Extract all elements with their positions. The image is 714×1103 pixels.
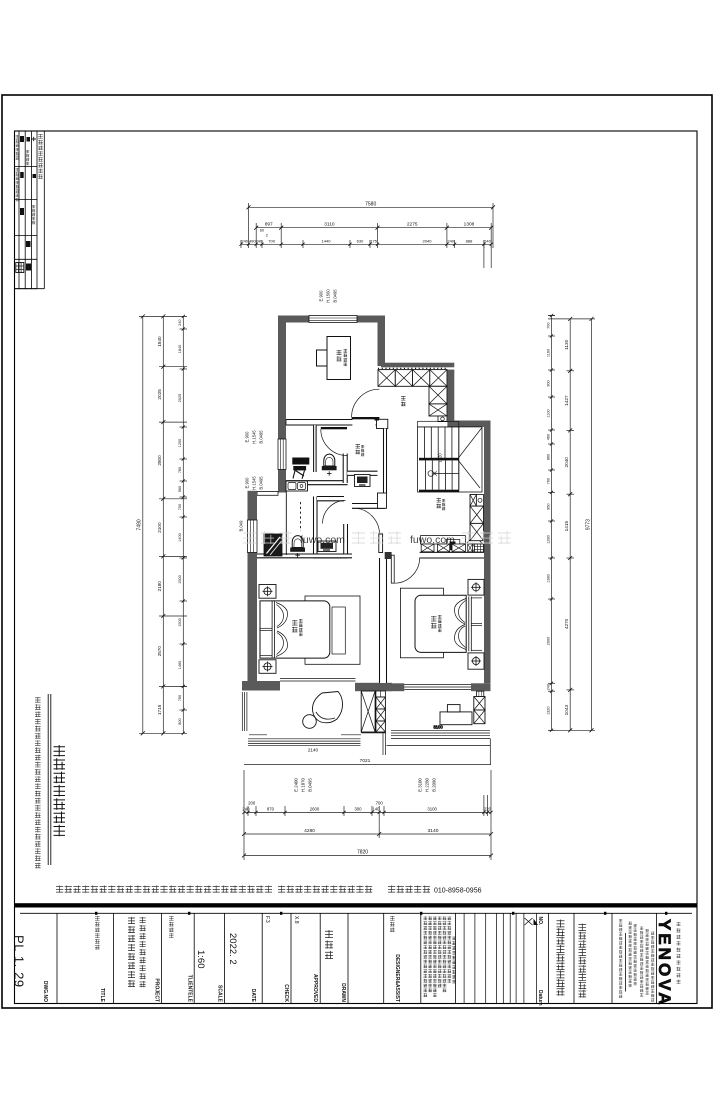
svg-text:900: 900 — [547, 380, 551, 386]
svg-text:H.2280: H.2280 — [425, 777, 430, 791]
svg-text:760: 760 — [178, 695, 182, 701]
svg-text:700: 700 — [268, 238, 275, 243]
svg-text:H.1545: H.1545 — [252, 476, 257, 490]
svg-text:1:60: 1:60 — [195, 950, 206, 969]
svg-text:TLIENTELE: TLIENTELE — [187, 975, 193, 1003]
svg-text:700: 700 — [178, 504, 182, 510]
svg-text:TITLE: TITLE — [99, 988, 105, 1003]
svg-text:3100: 3100 — [427, 806, 437, 811]
svg-text:E.3100: E.3100 — [418, 778, 423, 792]
svg-text:B.0495: B.0495 — [259, 430, 264, 444]
svg-text:1440: 1440 — [322, 238, 332, 243]
svg-text:760: 760 — [547, 478, 551, 484]
svg-text:7580: 7580 — [365, 202, 376, 208]
svg-text:1380: 1380 — [547, 574, 551, 582]
svg-text:NO.: NO. — [537, 917, 543, 927]
svg-text:240: 240 — [484, 238, 491, 243]
svg-text:1308: 1308 — [464, 222, 475, 228]
svg-text:E.2400: E.2400 — [294, 778, 299, 792]
svg-text:DATE: DATE — [250, 989, 256, 1003]
svg-text:2040: 2040 — [423, 238, 433, 243]
svg-text:200: 200 — [248, 801, 256, 806]
svg-text:CHECK: CHECK — [283, 984, 289, 1002]
svg-text:4280: 4280 — [304, 828, 315, 834]
svg-text:1043: 1043 — [564, 704, 569, 715]
svg-text:220: 220 — [484, 806, 492, 811]
svg-text:240: 240 — [547, 684, 551, 690]
svg-text:DRAWN: DRAWN — [340, 983, 346, 1002]
svg-text:1715: 1715 — [157, 704, 162, 715]
svg-text:1200: 1200 — [178, 439, 182, 447]
svg-text:DWG.NO: DWG.NO — [42, 981, 48, 1002]
svg-text:1100: 1100 — [547, 409, 551, 417]
svg-text:B.0495: B.0495 — [333, 289, 338, 303]
svg-text:2140: 2140 — [308, 748, 319, 753]
svg-text:B.0495: B.0495 — [259, 476, 264, 490]
svg-text:X.8: X.8 — [293, 916, 299, 924]
svg-text:1280: 1280 — [547, 535, 551, 543]
svg-text:2275: 2275 — [407, 222, 418, 228]
svg-text:2900: 2900 — [547, 637, 551, 645]
svg-text:140: 140 — [372, 806, 380, 811]
svg-text:YENOVA: YENOVA — [655, 919, 674, 1008]
svg-text:fuwo.com: fuwo.com — [300, 534, 345, 546]
svg-text:SCALE: SCALE — [217, 985, 223, 1003]
svg-text:560: 560 — [178, 486, 182, 492]
svg-text:3140: 3140 — [428, 828, 439, 834]
svg-text:APPROVED: APPROVED — [312, 974, 318, 1002]
svg-text:PROJECT: PROJECT — [154, 978, 160, 1002]
svg-text:1420: 1420 — [438, 453, 443, 463]
svg-text:950: 950 — [547, 504, 551, 510]
svg-text:1400: 1400 — [178, 533, 182, 541]
svg-text:1427: 1427 — [564, 395, 569, 406]
svg-text:H.1545: H.1545 — [252, 430, 257, 444]
svg-text:E.900: E.900 — [319, 290, 324, 302]
svg-text:240: 240 — [242, 806, 250, 811]
svg-text:1460: 1460 — [178, 661, 182, 669]
svg-text:175: 175 — [370, 238, 377, 243]
svg-text:1500: 1500 — [178, 618, 182, 626]
svg-text:2180: 2180 — [157, 581, 162, 592]
svg-text:240: 240 — [178, 320, 182, 326]
svg-text:fuwo.com: fuwo.com — [410, 534, 455, 546]
svg-text:H.1560: H.1560 — [326, 289, 331, 303]
svg-text:60: 60 — [260, 229, 264, 233]
svg-text:2570: 2570 — [157, 646, 162, 657]
svg-text:800: 800 — [178, 718, 182, 724]
svg-text:300: 300 — [354, 806, 362, 811]
svg-text:2022. 2: 2022. 2 — [227, 933, 238, 965]
svg-text:700: 700 — [547, 323, 551, 329]
svg-text:F.3: F.3 — [264, 916, 270, 923]
svg-text:860: 860 — [547, 454, 551, 460]
svg-text:E.900: E.900 — [245, 431, 250, 443]
svg-text:1320: 1320 — [547, 706, 551, 714]
svg-text:897: 897 — [265, 222, 273, 228]
svg-text:2025: 2025 — [157, 389, 162, 400]
svg-text:240: 240 — [447, 238, 454, 243]
svg-text:DESIGNER&ASSIST: DESIGNER&ASSIST — [394, 954, 400, 1002]
svg-text:2025: 2025 — [178, 394, 182, 402]
svg-text:888: 888 — [466, 238, 473, 243]
svg-text:B.2090: B.2090 — [432, 778, 437, 792]
svg-text:1160: 1160 — [547, 349, 551, 357]
svg-text:2: 2 — [266, 234, 268, 238]
svg-text:7820: 7820 — [357, 849, 368, 855]
svg-text:870: 870 — [267, 806, 275, 811]
svg-text:2040: 2040 — [564, 457, 569, 468]
svg-text:460: 460 — [547, 434, 551, 440]
svg-text:1130: 1130 — [564, 339, 569, 349]
svg-text:240: 240 — [255, 238, 262, 243]
svg-text:B.049: B.049 — [239, 520, 244, 532]
svg-text:010-8958-0956: 010-8958-0956 — [434, 887, 482, 894]
svg-text:1840: 1840 — [157, 336, 162, 347]
svg-text:1840: 1840 — [178, 345, 182, 353]
svg-text:H.1870: H.1870 — [301, 777, 306, 791]
svg-text:7021: 7021 — [360, 758, 371, 764]
svg-text:2600: 2600 — [310, 806, 320, 811]
svg-text:9773: 9773 — [585, 519, 591, 530]
svg-text:240: 240 — [241, 238, 248, 243]
svg-text:700: 700 — [376, 801, 384, 806]
svg-text:Datum: Datum — [537, 990, 543, 1006]
svg-text:1500: 1500 — [178, 575, 182, 583]
svg-text:B.0495: B.0495 — [308, 778, 313, 792]
svg-text:E.900: E.900 — [245, 477, 250, 489]
svg-text:3110: 3110 — [324, 222, 335, 228]
svg-text:PL 1. 29: PL 1. 29 — [12, 935, 27, 988]
svg-text:2100: 2100 — [157, 522, 162, 533]
svg-text:1415: 1415 — [564, 520, 569, 531]
svg-text:630: 630 — [357, 238, 364, 243]
svg-text:780: 780 — [178, 467, 182, 473]
svg-text:4270: 4270 — [564, 618, 569, 629]
svg-text:2800: 2800 — [157, 455, 162, 466]
svg-text:7490: 7490 — [137, 519, 143, 530]
